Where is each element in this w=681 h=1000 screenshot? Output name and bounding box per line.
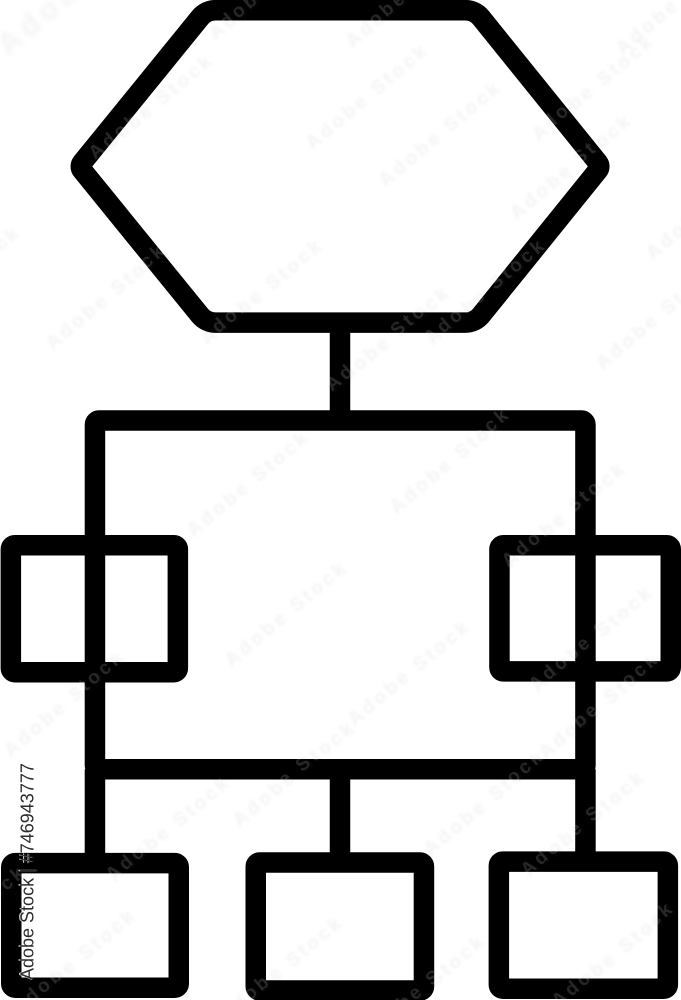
svg-text:Adobe Stock | #746943777: Adobe Stock | #746943777	[18, 763, 38, 980]
